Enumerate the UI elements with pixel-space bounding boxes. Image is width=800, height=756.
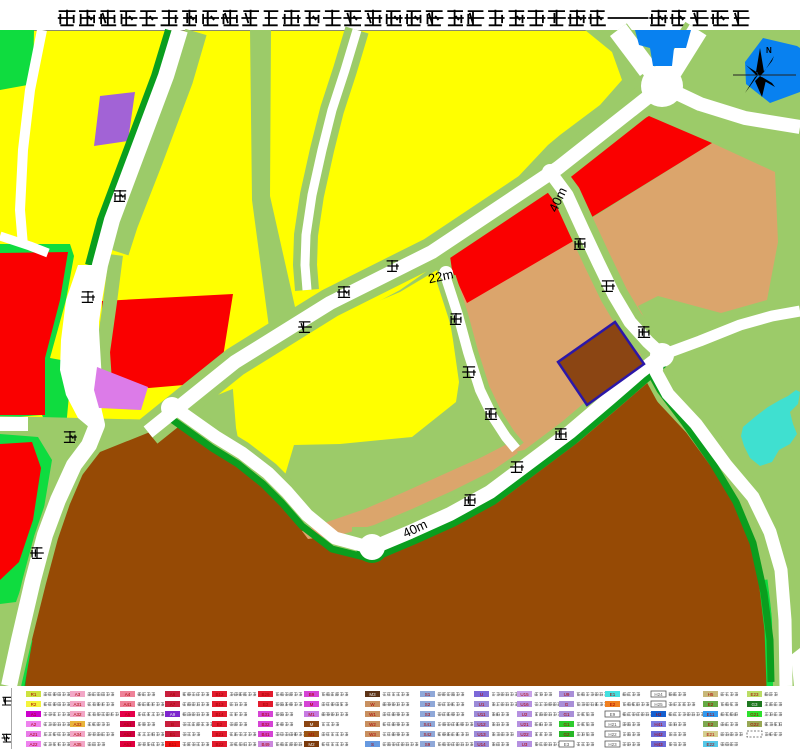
- svg-text:U1: U1: [479, 702, 485, 707]
- svg-text:B11: B11: [169, 742, 177, 747]
- svg-text:U15: U15: [520, 692, 529, 697]
- svg-text:S9: S9: [425, 742, 431, 747]
- svg-text:M2: M2: [308, 742, 315, 747]
- svg-text:U11: U11: [478, 712, 486, 717]
- svg-text:S42: S42: [423, 732, 432, 737]
- svg-text:B: B: [171, 722, 174, 727]
- svg-text:A52: A52: [123, 732, 132, 737]
- svg-text:A51: A51: [123, 722, 132, 727]
- svg-text:A7: A7: [170, 702, 176, 707]
- svg-text:H5: H5: [708, 692, 714, 697]
- svg-text:U3: U3: [522, 742, 528, 747]
- svg-text:G1: G1: [563, 712, 570, 717]
- svg-text:B13: B13: [215, 702, 224, 707]
- svg-text:E3: E3: [564, 742, 570, 747]
- svg-text:B3: B3: [263, 702, 269, 707]
- svg-text:B1: B1: [170, 732, 176, 737]
- svg-text:A34: A34: [73, 732, 82, 737]
- svg-text:A35: A35: [73, 742, 82, 747]
- svg-text:E2: E2: [708, 722, 714, 727]
- svg-text:U13: U13: [477, 732, 486, 737]
- svg-text:U21: U21: [520, 722, 529, 727]
- svg-text:A33: A33: [73, 722, 82, 727]
- svg-text:H3: H3: [656, 712, 662, 717]
- svg-text:E11: E11: [707, 712, 715, 717]
- svg-text:A6: A6: [170, 692, 176, 697]
- svg-text:H41: H41: [654, 722, 663, 727]
- svg-text:G22: G22: [750, 722, 759, 727]
- svg-text:R2: R2: [31, 702, 37, 707]
- svg-text:B31: B31: [261, 712, 270, 717]
- svg-text:E23: E23: [750, 692, 759, 697]
- svg-text:G3: G3: [751, 702, 758, 707]
- svg-text:B12: B12: [215, 692, 224, 697]
- svg-text:G2: G2: [563, 732, 570, 737]
- svg-text:S41: S41: [423, 722, 432, 727]
- svg-text:H22: H22: [608, 732, 617, 737]
- svg-text:M3: M3: [369, 692, 376, 697]
- svg-text:R1: R1: [31, 692, 37, 697]
- svg-text:A4: A4: [125, 692, 131, 697]
- svg-text:B22: B22: [215, 742, 224, 747]
- svg-text:H23: H23: [608, 742, 617, 747]
- svg-text:U12: U12: [477, 722, 486, 727]
- svg-text:S3: S3: [425, 712, 431, 717]
- svg-text:S1: S1: [425, 692, 431, 697]
- svg-text:A2: A2: [31, 722, 37, 727]
- svg-text:H25: H25: [654, 702, 663, 707]
- svg-text:N: N: [766, 46, 772, 55]
- svg-text:U16: U16: [520, 702, 529, 707]
- svg-text:G: G: [565, 702, 569, 707]
- svg-text:U9: U9: [564, 692, 570, 697]
- svg-text:H42: H42: [654, 732, 663, 737]
- svg-text:A53: A53: [123, 742, 132, 747]
- svg-text:W1: W1: [369, 712, 376, 717]
- svg-text:M: M: [310, 722, 314, 727]
- svg-text:M: M: [310, 702, 314, 707]
- svg-text:S2: S2: [425, 702, 431, 707]
- svg-text:M1: M1: [308, 712, 315, 717]
- svg-text:B21: B21: [215, 732, 224, 737]
- svg-text:A5: A5: [125, 712, 131, 717]
- svg-text:B41: B41: [261, 732, 270, 737]
- svg-text:E21: E21: [706, 732, 715, 737]
- svg-text:H43: H43: [654, 742, 663, 747]
- svg-text:U22: U22: [520, 732, 529, 737]
- svg-text:M1: M1: [308, 732, 315, 737]
- svg-text:E1: E1: [610, 692, 616, 697]
- svg-text:U: U: [480, 692, 483, 697]
- svg-text:B29: B29: [261, 692, 270, 697]
- svg-text:E2: E2: [708, 702, 714, 707]
- svg-text:A31: A31: [73, 702, 82, 707]
- svg-text:U2: U2: [522, 712, 528, 717]
- svg-text:A21: A21: [29, 732, 38, 737]
- svg-text:B2: B2: [217, 722, 223, 727]
- svg-text:B32: B32: [261, 722, 270, 727]
- svg-text:E9: E9: [610, 712, 616, 717]
- svg-text:A22: A22: [29, 742, 38, 747]
- svg-text:H24: H24: [654, 692, 663, 697]
- svg-text:A1: A1: [31, 712, 37, 717]
- svg-text:H21: H21: [608, 722, 617, 727]
- svg-text:B9: B9: [309, 692, 315, 697]
- svg-text:B14: B14: [215, 712, 224, 717]
- svg-text:W3: W3: [369, 732, 376, 737]
- svg-text:G1: G1: [563, 722, 570, 727]
- svg-text:A3: A3: [75, 692, 81, 697]
- svg-text:S: S: [371, 742, 374, 747]
- svg-text:U14: U14: [477, 742, 486, 747]
- svg-text:A41: A41: [123, 702, 132, 707]
- svg-text:G21: G21: [750, 712, 759, 717]
- svg-text:A9: A9: [170, 712, 176, 717]
- svg-text:E2: E2: [610, 702, 616, 707]
- svg-text:W2: W2: [369, 722, 376, 727]
- svg-text:A32: A32: [73, 712, 82, 717]
- svg-text:B49: B49: [261, 742, 270, 747]
- svg-text:E22: E22: [706, 742, 715, 747]
